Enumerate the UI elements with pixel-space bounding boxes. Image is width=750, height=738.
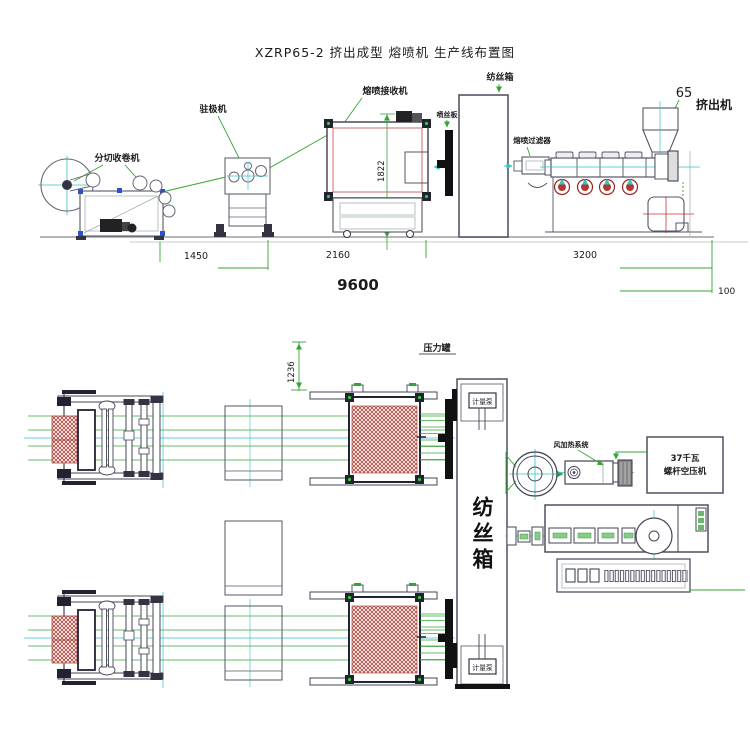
extruder-barrel <box>551 158 655 177</box>
extruder-plan <box>505 505 708 562</box>
dim-2160: 2160 <box>326 250 350 261</box>
winder-plan-row2 <box>52 590 163 688</box>
dim-100: 100 <box>718 287 735 297</box>
dim-9600: 9600 <box>337 276 379 294</box>
barrel-cooling-fans <box>555 179 638 195</box>
blower-plan <box>509 449 563 500</box>
air-heating-system-label: 风加热系统 <box>554 440 589 449</box>
spinning-box-side: 纺丝箱 <box>459 71 514 237</box>
pressure-tank-label: 压力罐 <box>423 342 450 354</box>
slitting-winder-label: 分切收卷机 <box>94 152 139 164</box>
spinneret-plate-label: 喷丝板 <box>437 110 459 119</box>
spinneret-plate-side: 喷丝板 <box>437 110 459 196</box>
meltblown-receiver-label: 熔喷接收机 <box>362 85 407 97</box>
spinning-box-plan-label: 纺丝箱 <box>461 496 495 592</box>
metering-pump-upper-label: 计量泵 <box>472 397 493 406</box>
winder-plan-row1 <box>52 390 163 488</box>
receiver-plan-row2 <box>310 583 453 685</box>
hopper-funnel <box>643 130 678 152</box>
side-view: XZRP65-2 挤出成型 熔喷机 生产线布置图 分切收卷机 驻极机 <box>38 45 748 297</box>
slitting-winder-side: 分切收卷机 <box>38 152 175 240</box>
hopper-plan-circle <box>636 518 672 554</box>
electret-machine-label: 驻极机 <box>199 103 226 115</box>
electret-machine-side: 驻极机 <box>199 103 274 237</box>
air-compressor-label-line2: 螺杆空压机 <box>664 466 707 477</box>
electret-plan-row1 <box>225 406 282 480</box>
winder-motor <box>100 219 122 232</box>
melt-filter-side: 熔喷过滤器 <box>504 135 551 188</box>
dim-1236: 1236 <box>287 361 297 383</box>
melt-filter-label: 熔喷过滤器 <box>513 135 551 145</box>
meltblown-line-layout-drawing: XZRP65-2 挤出成型 熔喷机 生产线布置图 分切收卷机 驻极机 <box>0 0 750 738</box>
hopper-top <box>643 108 678 130</box>
extruder-side: 65 挤出机 <box>540 86 732 236</box>
air-heater-plan <box>558 460 634 486</box>
dim-3200: 3200 <box>573 250 597 261</box>
extruder-model-label: 65 <box>676 86 693 101</box>
receiver-height-dim: 1822 <box>377 160 387 182</box>
dim-1450: 1450 <box>184 251 208 262</box>
electret-plan-row2 <box>225 606 282 680</box>
control-panel-plan <box>557 559 745 592</box>
metering-pump-lower-label: 计量泵 <box>472 663 493 672</box>
drawing-title: XZRP65-2 挤出成型 熔喷机 生产线布置图 <box>255 45 515 60</box>
plan-view: 1236 压力罐 计量泵 计量泵 <box>24 342 745 689</box>
receiver-motor <box>396 111 412 122</box>
electret-plan-mid <box>225 521 282 595</box>
air-compressor-label-line1: 37千瓦 <box>671 453 700 464</box>
meltblown-receiver-side: 熔喷接收机 1822 <box>324 85 452 250</box>
spinning-box-label: 纺丝箱 <box>486 71 513 83</box>
receiver-plan-row1 <box>310 383 453 485</box>
ground-dimensions <box>160 240 712 293</box>
extruder-label: 挤出机 <box>696 97 732 112</box>
